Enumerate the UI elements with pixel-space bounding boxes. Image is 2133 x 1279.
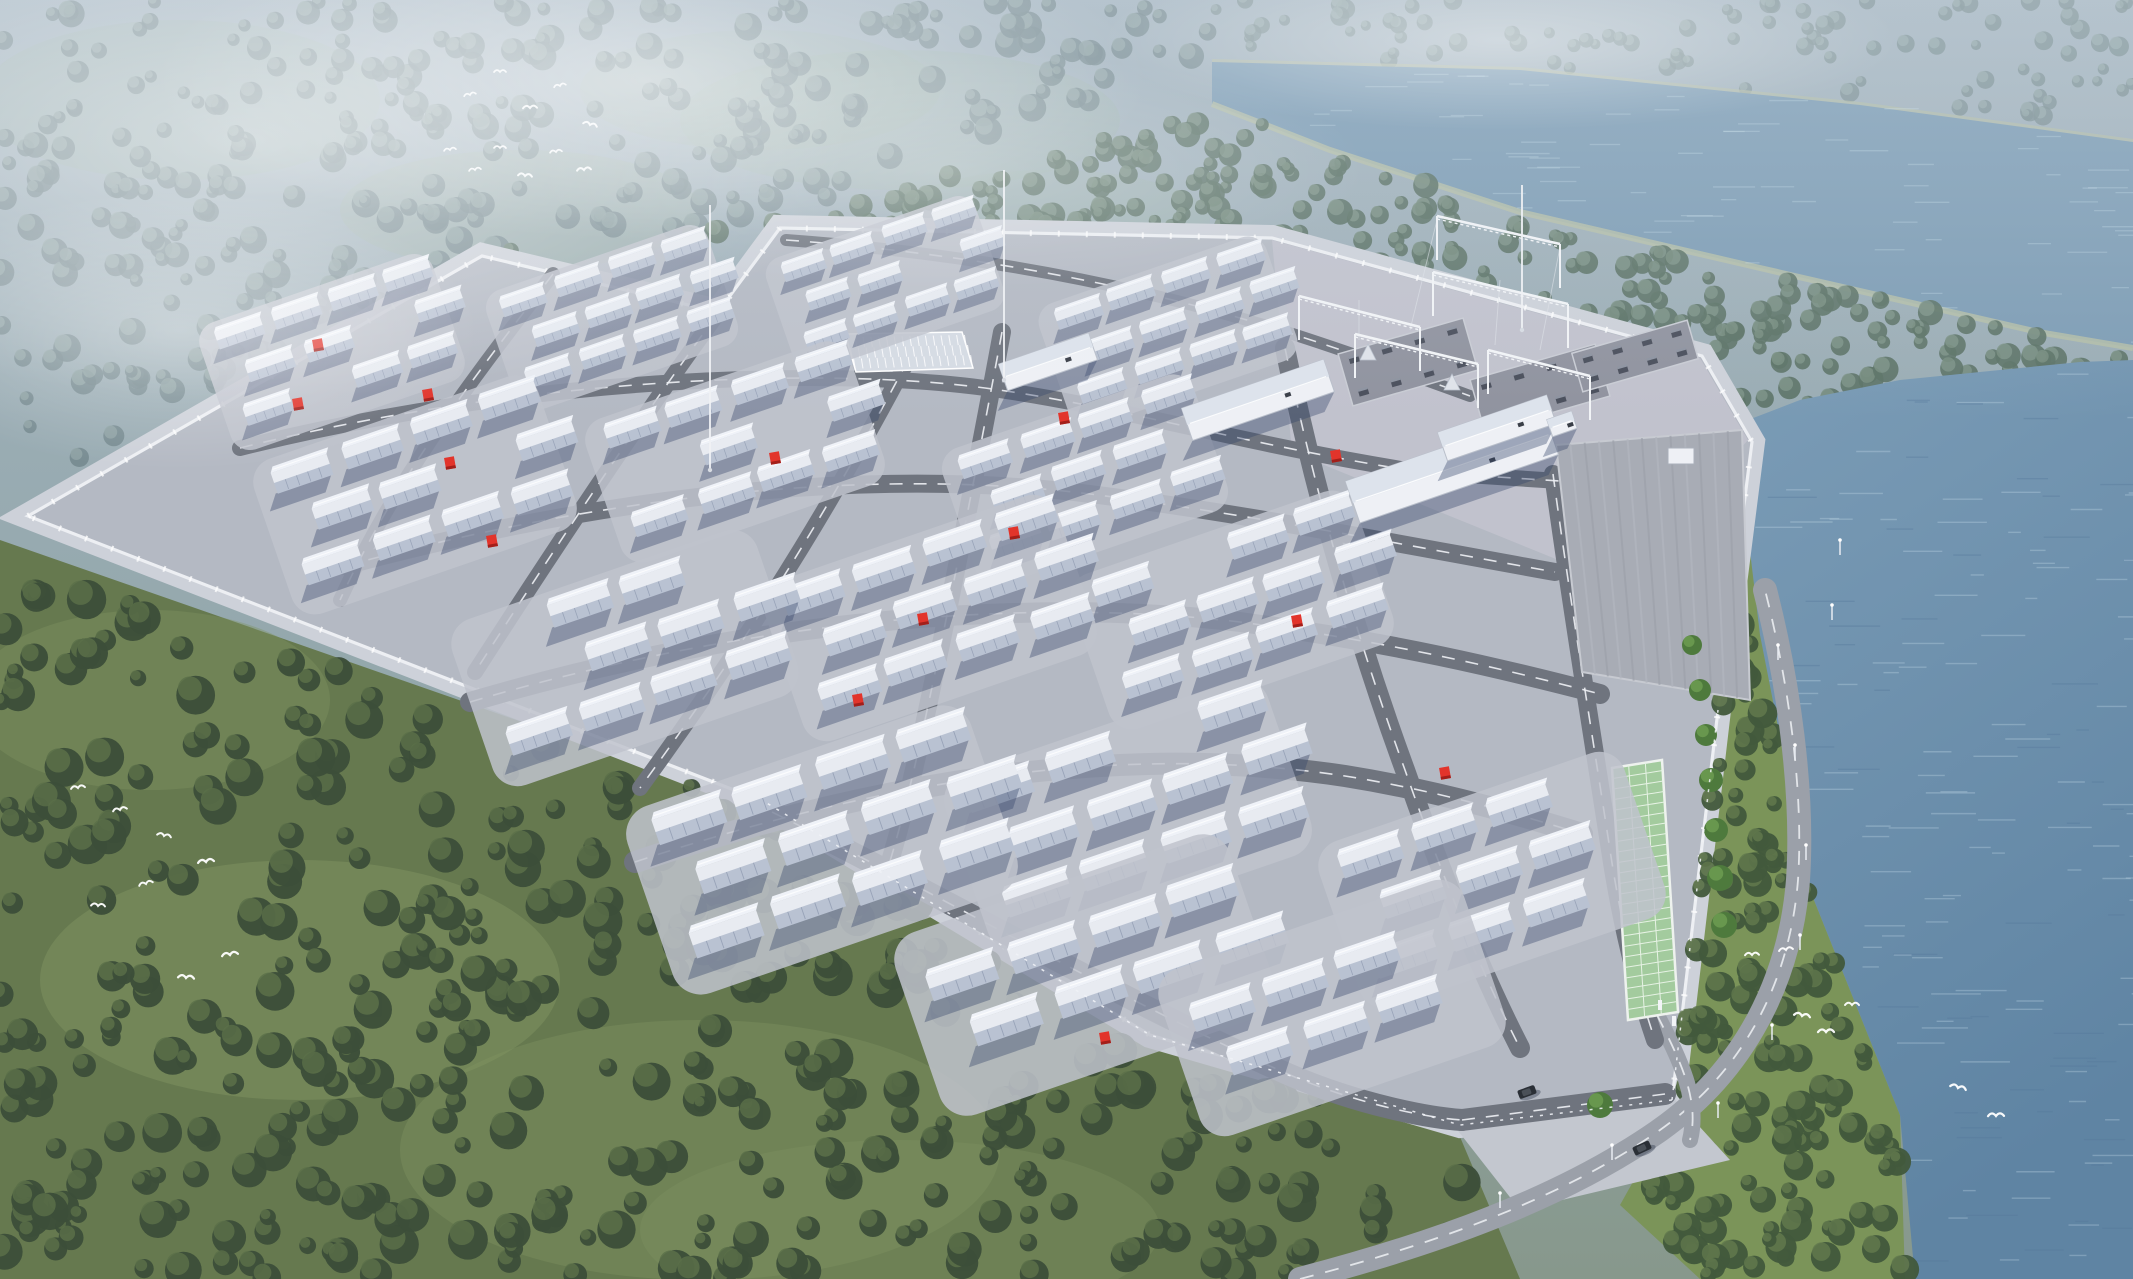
- tree-highlight: [694, 1096, 704, 1106]
- tree-highlight: [600, 1059, 611, 1070]
- tree-highlight: [72, 1149, 91, 1168]
- warehouse-roof: [1556, 430, 1750, 700]
- tree: [225, 734, 250, 759]
- tree-highlight: [1021, 1206, 1032, 1217]
- tree: [46, 1138, 66, 1158]
- tree: [577, 844, 611, 878]
- tree: [733, 1221, 769, 1257]
- tree-highlight: [609, 1147, 628, 1166]
- tree: [439, 1066, 468, 1095]
- tree-highlight: [326, 658, 343, 675]
- tree-highlight: [1746, 911, 1760, 925]
- tree: [431, 896, 465, 930]
- tree: [1728, 788, 1743, 803]
- tree: [256, 1032, 292, 1068]
- tree-highlight: [1322, 1139, 1334, 1151]
- tree-highlight: [414, 705, 433, 724]
- tree-highlight: [804, 1054, 822, 1072]
- tree-highlight: [214, 1250, 230, 1266]
- tree-highlight: [719, 1077, 738, 1096]
- tree: [1732, 1113, 1762, 1143]
- tree-highlight: [461, 878, 472, 889]
- tree-highlight: [184, 1162, 200, 1178]
- tree: [594, 931, 622, 959]
- tree: [1781, 1183, 1798, 1200]
- tree: [91, 818, 127, 854]
- tree-highlight: [634, 1063, 658, 1087]
- tree-highlight: [112, 1000, 124, 1012]
- tree-highlight: [1765, 1035, 1775, 1045]
- tree: [364, 890, 401, 927]
- tree-highlight: [383, 951, 400, 968]
- tree: [531, 1197, 568, 1234]
- tree: [909, 1219, 928, 1238]
- tree-highlight: [299, 714, 313, 728]
- tree: [776, 1248, 808, 1279]
- tree-highlight: [1236, 1137, 1246, 1147]
- tree-highlight: [1746, 1092, 1762, 1108]
- tree-highlight: [1891, 1255, 1909, 1273]
- tree-highlight: [256, 1134, 280, 1158]
- tree-highlight: [276, 957, 287, 968]
- tree-highlight: [362, 687, 376, 701]
- tree-highlight: [411, 1074, 426, 1089]
- tree-highlight: [1812, 1242, 1830, 1260]
- tree-highlight: [1163, 1138, 1184, 1159]
- tree-highlight: [74, 1054, 88, 1068]
- tree: [546, 800, 565, 819]
- tree-highlight: [1863, 1236, 1880, 1253]
- tree: [502, 806, 524, 828]
- tree-highlight: [1724, 1141, 1734, 1151]
- tree-highlight: [734, 1222, 756, 1244]
- tree-highlight: [101, 1017, 114, 1030]
- tree-highlight: [1706, 972, 1724, 990]
- tree-highlight: [166, 1252, 189, 1275]
- tree: [187, 1117, 217, 1147]
- tree-highlight: [1, 797, 13, 809]
- tree-highlight: [896, 1226, 909, 1239]
- tree-highlight: [1850, 1202, 1866, 1218]
- tree-highlight: [1782, 1183, 1792, 1193]
- tree-highlight: [171, 637, 185, 651]
- tree: [509, 1075, 544, 1110]
- tree: [1200, 1247, 1231, 1278]
- tree: [1748, 699, 1778, 729]
- tree: [490, 1112, 528, 1150]
- tree: [1665, 1195, 1681, 1211]
- tree: [816, 1115, 833, 1132]
- tree: [1738, 853, 1768, 883]
- tree: [301, 1051, 337, 1087]
- tree-highlight: [491, 1112, 514, 1135]
- tree-highlight: [323, 1099, 346, 1122]
- tree: [395, 1198, 429, 1232]
- tree: [1, 809, 29, 837]
- tree-highlight: [468, 1182, 484, 1198]
- tree: [70, 1206, 87, 1223]
- tree-highlight: [239, 898, 263, 922]
- tree-highlight: [1872, 1205, 1889, 1222]
- tree-highlight: [350, 848, 363, 861]
- tree-highlight: [507, 981, 529, 1003]
- tree-highlight: [980, 1147, 992, 1159]
- tree: [1443, 1164, 1481, 1202]
- tree: [67, 580, 106, 619]
- tree: [455, 1137, 471, 1153]
- tree: [306, 948, 331, 973]
- tree: [823, 1077, 857, 1111]
- tree: [883, 1072, 919, 1108]
- tree: [328, 1243, 359, 1274]
- tree-highlight: [424, 1164, 445, 1185]
- tree-highlight: [23, 583, 41, 601]
- aerial-render-scene: [0, 0, 2133, 1279]
- tree-highlight: [533, 1197, 556, 1220]
- tree-highlight: [88, 886, 106, 904]
- tree-highlight: [135, 1259, 147, 1271]
- tree: [212, 1220, 246, 1254]
- tree: [1701, 789, 1723, 811]
- tree-highlight: [585, 902, 609, 926]
- tree: [73, 1054, 96, 1077]
- tree-highlight: [1728, 1093, 1739, 1104]
- tree: [797, 1216, 821, 1240]
- tree-highlight: [503, 806, 516, 819]
- tree: [1685, 938, 1708, 961]
- tree: [1051, 1193, 1078, 1220]
- tree: [1645, 1186, 1664, 1205]
- tree: [336, 827, 353, 844]
- tree: [1811, 1242, 1841, 1272]
- tree: [814, 1137, 845, 1168]
- tree-highlight: [416, 895, 428, 907]
- tree: [1014, 1170, 1031, 1187]
- tree: [1825, 1079, 1853, 1107]
- tree-highlight: [65, 1029, 77, 1041]
- tree-highlight: [201, 788, 224, 811]
- tree: [76, 637, 108, 669]
- tree: [87, 885, 116, 914]
- tree: [461, 878, 479, 896]
- tree-highlight: [13, 1184, 33, 1204]
- tree-highlight: [1744, 1256, 1758, 1270]
- tree: [1786, 1091, 1816, 1121]
- tree-highlight: [3, 893, 16, 906]
- tree: [604, 776, 632, 804]
- tree: [221, 1024, 253, 1056]
- tree-highlight: [450, 1220, 475, 1245]
- tree-highlight: [1674, 1213, 1692, 1231]
- tree: [1694, 1196, 1720, 1222]
- tree: [471, 927, 488, 944]
- tree: [803, 1054, 831, 1082]
- tree: [136, 936, 156, 956]
- tree-highlight: [1117, 1071, 1141, 1095]
- tree-highlight: [1145, 1219, 1164, 1238]
- tree-highlight: [400, 907, 417, 924]
- tree-highlight: [546, 800, 558, 812]
- tree: [1827, 1218, 1854, 1245]
- tree-highlight: [420, 792, 442, 814]
- tree-highlight: [105, 1122, 124, 1141]
- tree: [1216, 1168, 1251, 1203]
- tree-highlight: [285, 706, 300, 721]
- tree: [325, 657, 353, 685]
- tree: [19, 1221, 40, 1242]
- tree: [316, 1181, 341, 1206]
- tree-highlight: [113, 962, 127, 976]
- tree-highlight: [417, 940, 428, 951]
- tree: [130, 670, 146, 686]
- tree: [1745, 1091, 1770, 1116]
- tree: [278, 823, 304, 849]
- tree: [64, 1029, 83, 1048]
- tree-highlight: [1260, 1173, 1273, 1186]
- tree-highlight: [1713, 848, 1726, 861]
- tree-highlight: [625, 1192, 639, 1206]
- tree: [66, 1169, 96, 1199]
- tree-highlight: [227, 759, 251, 783]
- tree: [1809, 1131, 1829, 1151]
- tree: [428, 837, 463, 872]
- tree-highlight: [195, 723, 211, 739]
- tree: [697, 1214, 715, 1232]
- tree: [104, 1121, 135, 1152]
- tree-highlight: [1782, 1210, 1802, 1230]
- tree-highlight: [816, 1138, 835, 1157]
- tree-highlight: [1122, 1238, 1140, 1256]
- tree-highlight: [1695, 1197, 1711, 1213]
- tree: [1291, 1238, 1319, 1266]
- tree-highlight: [509, 830, 532, 853]
- tree: [507, 830, 544, 867]
- tree: [398, 907, 425, 934]
- tree: [506, 980, 542, 1016]
- tree-highlight: [240, 1251, 256, 1267]
- aerial-render-stage: Aerial rendering of a battery energy sto…: [0, 0, 2133, 1279]
- tree-highlight: [1279, 1183, 1303, 1207]
- tree-highlight: [262, 904, 285, 927]
- tree: [465, 909, 483, 927]
- tree-highlight: [1646, 1186, 1658, 1198]
- tree: [423, 1164, 456, 1197]
- tree: [1763, 739, 1778, 754]
- tree-highlight: [47, 1139, 60, 1152]
- tree: [127, 601, 160, 634]
- tree-highlight: [177, 1050, 190, 1063]
- tree-highlight: [817, 1115, 828, 1126]
- tree: [167, 864, 199, 896]
- tree: [410, 1074, 434, 1098]
- tree-highlight: [270, 850, 293, 873]
- tree-highlight: [45, 842, 62, 859]
- tree-highlight: [685, 1052, 700, 1067]
- tree: [1849, 1202, 1875, 1228]
- tree: [1208, 1220, 1225, 1237]
- tree-highlight: [1739, 963, 1757, 981]
- tree: [1839, 1115, 1867, 1143]
- tree: [234, 661, 256, 683]
- tree-highlight: [1365, 1220, 1380, 1235]
- tree: [495, 959, 518, 982]
- tree-highlight: [298, 775, 314, 791]
- tree-highlight: [129, 602, 150, 623]
- tree-highlight: [892, 1106, 909, 1123]
- tree-highlight: [1763, 1233, 1772, 1242]
- tree: [1854, 1043, 1870, 1059]
- tree-highlight: [429, 838, 451, 860]
- tree: [321, 1099, 358, 1136]
- tree-highlight: [464, 1020, 481, 1037]
- tree-highlight: [155, 1037, 179, 1061]
- tree-highlight: [698, 1215, 709, 1226]
- tree-highlight: [1279, 1264, 1289, 1274]
- tree: [1696, 1007, 1713, 1024]
- tree-highlight: [150, 1167, 160, 1177]
- tree-highlight: [92, 819, 114, 841]
- tree-highlight: [226, 735, 242, 751]
- tree: [699, 1014, 732, 1047]
- tree-highlight: [1681, 1235, 1699, 1253]
- tree: [1182, 1132, 1202, 1152]
- tree-highlight: [1664, 1230, 1679, 1245]
- tree: [633, 1063, 671, 1101]
- tree: [1816, 1170, 1835, 1189]
- tree: [130, 964, 160, 994]
- tree-highlight: [87, 738, 111, 762]
- tree-highlight: [578, 845, 599, 866]
- tree-highlight: [1015, 1170, 1025, 1180]
- tree: [467, 1181, 493, 1207]
- tree: [134, 1259, 153, 1278]
- tree-highlight: [1855, 1043, 1865, 1053]
- tree: [44, 1237, 67, 1260]
- tree: [830, 1165, 856, 1191]
- tree: [275, 957, 293, 975]
- tree: [1364, 1220, 1388, 1244]
- tree: [176, 1050, 197, 1071]
- tree-highlight: [549, 880, 573, 904]
- tree: [1871, 1205, 1898, 1232]
- tree-highlight: [1167, 1226, 1182, 1241]
- tree-highlight: [361, 1259, 381, 1279]
- tree-highlight: [307, 948, 322, 963]
- tree-highlight: [471, 928, 482, 939]
- tree: [1813, 952, 1830, 969]
- tree: [85, 738, 124, 777]
- tree-highlight: [1773, 1107, 1789, 1123]
- tree: [684, 1052, 708, 1076]
- tree-highlight: [443, 992, 461, 1010]
- tree: [1750, 1187, 1776, 1213]
- tree-highlight: [279, 823, 295, 839]
- tree: [260, 1209, 276, 1225]
- tree: [349, 847, 371, 869]
- tree-highlight: [410, 742, 427, 759]
- tree-highlight: [1822, 1003, 1833, 1014]
- tree: [47, 799, 77, 829]
- roof-hut: [1668, 448, 1694, 464]
- tree: [1259, 1173, 1280, 1194]
- tree-highlight: [168, 864, 188, 884]
- tree: [296, 738, 335, 777]
- tree: [947, 1232, 982, 1267]
- tree: [924, 1183, 948, 1207]
- tree-highlight: [299, 928, 313, 942]
- tree-highlight: [129, 765, 145, 781]
- tree-highlight: [1763, 739, 1773, 749]
- tree: [763, 1177, 784, 1198]
- tree-highlight: [740, 1098, 760, 1118]
- tree-highlight: [1739, 853, 1758, 872]
- tree-highlight: [564, 1263, 579, 1278]
- tree-highlight: [96, 784, 114, 802]
- tree-highlight: [1891, 1152, 1901, 1162]
- tree-highlight: [980, 1200, 1001, 1221]
- tree-highlight: [188, 1000, 209, 1021]
- tree-highlight: [1735, 760, 1748, 773]
- tree: [597, 1210, 635, 1248]
- tree: [416, 1021, 437, 1042]
- tree-highlight: [1096, 1074, 1117, 1095]
- tree-highlight: [764, 1178, 777, 1191]
- tree: [225, 758, 263, 796]
- tree-highlight: [1767, 796, 1777, 806]
- tree-highlight: [1753, 831, 1763, 841]
- tree: [213, 1250, 238, 1275]
- tree-highlight: [440, 1067, 458, 1085]
- tree-highlight: [1020, 1234, 1031, 1245]
- tree-highlight: [1152, 1172, 1166, 1186]
- tree: [345, 701, 383, 739]
- tree: [922, 1128, 947, 1153]
- tree-highlight: [68, 580, 92, 604]
- tree-highlight: [1817, 1170, 1829, 1182]
- tree-highlight: [1044, 1138, 1058, 1152]
- tree-highlight: [1693, 879, 1704, 890]
- tree-highlight: [1831, 1017, 1846, 1032]
- tree: [448, 1220, 488, 1260]
- tree-highlight: [397, 1199, 418, 1220]
- tree-highlight: [778, 1248, 798, 1268]
- tree-highlight: [234, 662, 248, 676]
- tree-highlight: [382, 1088, 403, 1109]
- tree: [461, 955, 498, 992]
- tree: [428, 948, 453, 973]
- tree-highlight: [923, 1128, 939, 1144]
- tree: [45, 748, 84, 787]
- tree: [442, 992, 471, 1021]
- tree-highlight: [1445, 1164, 1468, 1187]
- tree-highlight: [213, 1221, 234, 1242]
- tree-highlight: [1713, 758, 1722, 767]
- tree-highlight: [1870, 1124, 1885, 1139]
- tree: [876, 1147, 899, 1170]
- tree: [254, 1133, 292, 1171]
- tree: [488, 842, 506, 860]
- tree-highlight: [300, 1238, 310, 1248]
- tree-highlight: [581, 1230, 591, 1240]
- warehouse-building: [1556, 430, 1750, 700]
- tree: [1728, 1093, 1746, 1111]
- tree-highlight: [260, 1209, 270, 1219]
- tree: [1046, 1090, 1069, 1113]
- tree: [1121, 1237, 1150, 1266]
- tree: [268, 849, 305, 886]
- tree-highlight: [1202, 1248, 1221, 1267]
- tree-highlight: [740, 1151, 755, 1166]
